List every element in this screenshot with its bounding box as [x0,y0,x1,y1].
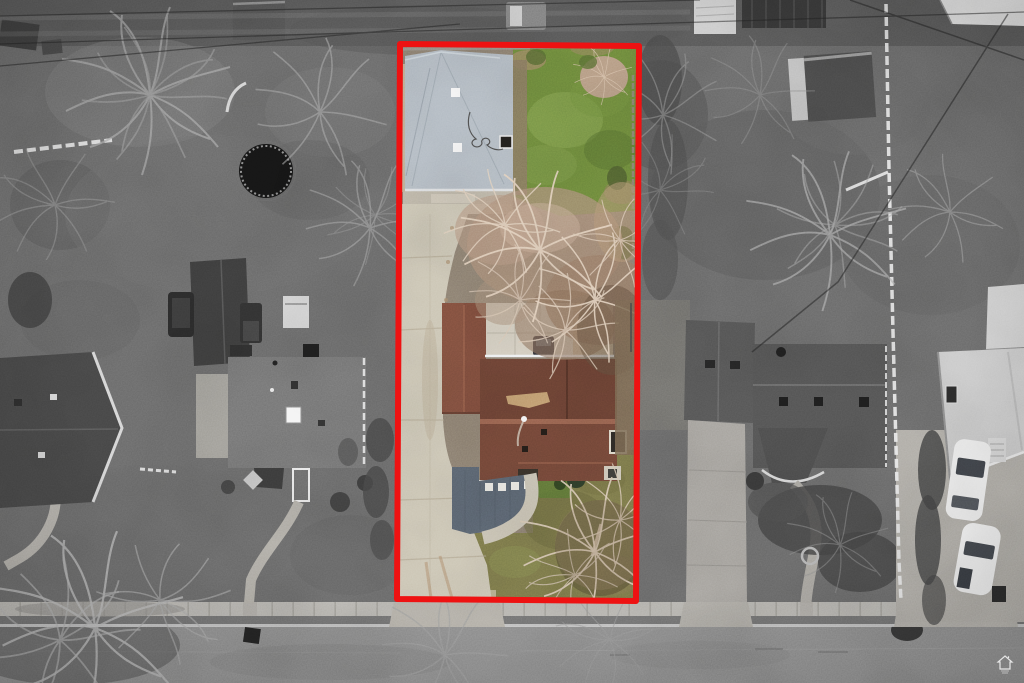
aerial-photo [0,0,1024,683]
photo-grain [0,0,1024,683]
aerial-photo-canvas [0,0,1024,683]
